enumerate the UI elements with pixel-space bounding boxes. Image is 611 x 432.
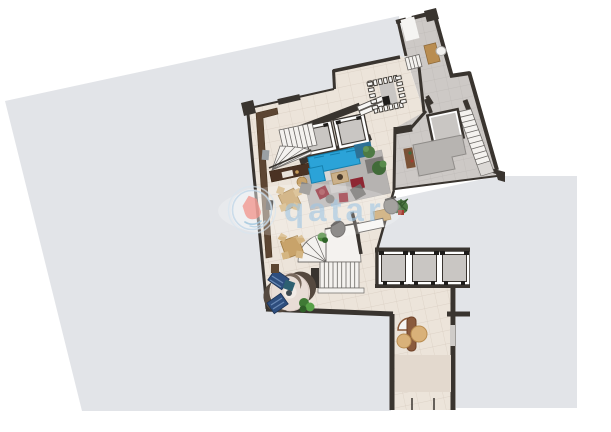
svg-text:qatar: qatar <box>284 191 385 228</box>
